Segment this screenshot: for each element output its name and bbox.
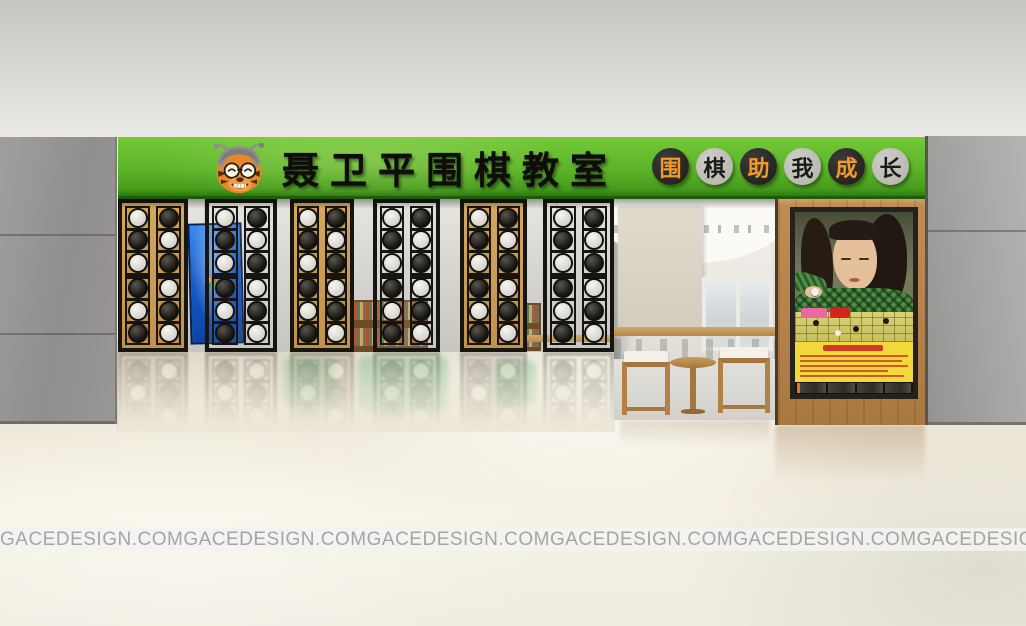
panel-column [550,206,576,345]
go-screen-panel [290,199,354,352]
panel-cell [469,208,489,231]
go-stone-black [411,301,431,321]
go-stone-black [498,253,518,273]
go-stone-black [128,278,148,298]
go-stone-white [159,278,179,298]
go-stone-white [553,301,573,321]
go-stone-white [247,278,267,298]
panel-cell [158,301,179,324]
go-stone-white [498,278,518,298]
go-stone-white [128,253,148,273]
go-stone-black [584,253,604,273]
go-stone-black [159,208,179,228]
panel-cell [412,253,432,279]
panel-column [582,206,608,345]
panel-cell [214,279,236,302]
panel-cell [552,231,574,254]
panel-cell [499,208,519,231]
interior-railing [614,327,775,336]
panel-cell [327,208,345,231]
panel-cell [499,301,519,324]
slogan-circle: 助 [740,148,777,185]
panel-cell [246,279,268,302]
panel-cell [469,231,489,254]
watermark-text: GACEDESIGN.COM [550,529,733,551]
wall-base [0,421,115,424]
round-side-table [670,357,716,417]
go-stone-white [553,253,573,273]
panel-cell [127,324,148,344]
go-stone-black [298,230,318,250]
chair-frame [622,362,670,415]
storefront-render: 聂卫平围棋教室 围棋助我成长 GACEDESIGN.COMGACEDESIGN.… [0,0,1026,626]
go-stone-white [247,323,267,343]
go-stone-white [215,208,235,228]
poster-info-panel [795,342,913,382]
mall-ceiling [0,0,1026,136]
chair-frame [718,358,770,413]
panel-cell [299,324,317,344]
wall-seam [0,333,115,335]
watermark-text: GACEDESIGN.COM [917,529,1026,551]
panel-cell [299,231,317,254]
go-stone-black [498,208,518,228]
go-stone-white [326,323,346,343]
girl-eye [859,258,869,260]
panel-cell [127,208,148,231]
panel-cell [214,231,236,254]
panel-cell [499,253,519,279]
go-stone-white [326,230,346,250]
panel-column [156,206,181,345]
go-stone-white [159,323,179,343]
poster-text-line [800,370,888,372]
panel-cell [158,253,179,279]
poster-headline-bar [823,345,883,351]
panel-cell [246,231,268,254]
panel-column [467,206,491,345]
tiger-mascot-icon [210,140,268,194]
panel-cell [499,279,519,302]
panel-column [325,206,347,345]
slogan-circle: 棋 [696,148,733,185]
panel-cell [158,324,179,344]
go-stone-black [159,301,179,321]
panel-cell [552,253,574,279]
black-go-stone [813,320,819,326]
wall-base [928,422,1026,425]
panel-cell [158,208,179,231]
storefront-sign: 聂卫平围棋教室 围棋助我成长 [118,137,925,199]
go-stone-white [382,301,402,321]
go-class-poster [790,207,918,399]
panel-cell [469,324,489,344]
go-stone-black [247,208,267,228]
go-stone-black [298,323,318,343]
white-go-stone [811,288,819,296]
go-screen-panel [373,199,440,352]
roller-blind [618,207,702,331]
go-stone-black [326,301,346,321]
panel-cell [214,253,236,279]
black-go-stone [853,326,859,332]
go-stone-black [553,323,573,343]
pillar-reflection [775,425,925,481]
go-stone-black [215,323,235,343]
go-stone-black [128,323,148,343]
panel-column [497,206,521,345]
go-stone-black [498,301,518,321]
go-stone-black [382,230,402,250]
panel-cell [499,324,519,344]
go-stone-black [215,278,235,298]
go-stone-white [498,230,518,250]
go-stone-white [469,253,489,273]
sign-slogan-circles: 围棋助我成长 [652,148,909,185]
panel-cell [158,231,179,254]
panel-cell [584,279,606,302]
girl-eye [841,258,851,260]
go-stone-white [411,278,431,298]
mall-wall-left [0,137,117,424]
panel-cell [382,301,402,324]
go-stone-black [584,301,604,321]
go-stone-white [247,230,267,250]
go-stone-white [411,230,431,250]
panel-cell [158,279,179,302]
panel-cell [299,301,317,324]
slogan-circle: 成 [828,148,865,185]
panel-cell [412,231,432,254]
entrance-reflection [620,420,770,446]
go-stone-white [584,230,604,250]
panel-cell [127,279,148,302]
poster-photo-strip [795,382,913,394]
go-stone-black [247,253,267,273]
go-stone-black [584,208,604,228]
panel-column [410,206,434,345]
panel-cell [584,208,606,231]
panel-cell [584,253,606,279]
panel-cell [412,324,432,344]
panel-cell [469,301,489,324]
girl-hair-bangs [829,220,879,240]
panel-column [380,206,404,345]
panel-cell [127,253,148,279]
panel-cell [552,301,574,324]
panel-cell [214,324,236,344]
go-stone-white [215,253,235,273]
go-stone-white [469,208,489,228]
go-stone-white [298,301,318,321]
go-stone-white [382,253,402,273]
panel-cell [382,253,402,279]
reflection-fade [118,352,615,432]
go-stone-white [159,230,179,250]
panel-cell [552,324,574,344]
panel-cell [299,253,317,279]
go-stone-black [382,278,402,298]
go-stone-black [411,253,431,273]
watermark-text: GACEDESIGN.COM [367,529,550,551]
go-stone-black [298,278,318,298]
go-stone-white [382,208,402,228]
panel-cell [246,301,268,324]
go-stone-black [247,301,267,321]
go-stone-black [382,323,402,343]
white-go-stone [835,330,841,336]
go-stone-white [584,278,604,298]
go-screen-panel [118,199,188,352]
panel-cell [412,279,432,302]
go-screen-panel [543,199,614,352]
poster-text-line [800,375,904,377]
panel-cell [246,208,268,231]
poster-badge [801,308,827,318]
mall-wall-right [925,135,1026,425]
panel-cell [327,324,345,344]
slogan-circle: 我 [784,148,821,185]
panel-cell [552,208,574,231]
go-stone-black [326,208,346,228]
panel-cell [584,231,606,254]
panel-column [212,206,238,345]
poster-badges [801,308,850,318]
sign-title: 聂卫平围棋教室 [282,140,618,194]
panel-cell [246,324,268,344]
panel-cell [327,301,345,324]
wood-pillar [775,197,925,425]
go-stone-white [553,208,573,228]
panel-cell [327,231,345,254]
watermark-band: GACEDESIGN.COMGACEDESIGN.COMGACEDESIGN.C… [0,528,1026,551]
go-stone-white [584,323,604,343]
go-screen-panel [205,199,277,352]
go-stone-black [553,278,573,298]
wall-seam [928,230,1026,232]
go-stone-white [498,323,518,343]
watermark-text: GACEDESIGN.COM [733,529,916,551]
panel-cell [584,301,606,324]
panel-cell [382,208,402,231]
go-stone-white [298,208,318,228]
panel-cell [327,279,345,302]
table-leg [690,366,696,410]
poster-badge [830,308,850,318]
panel-cell [214,208,236,231]
panel-cell [299,279,317,302]
panel-cell [412,301,432,324]
black-go-stone [883,318,889,324]
go-stone-white [298,253,318,273]
panel-cell [469,279,489,302]
panel-cell [382,279,402,302]
go-stone-white [215,301,235,321]
slogan-circle: 长 [872,148,909,185]
watermark-text: GACEDESIGN.COM [0,529,183,551]
panel-column [125,206,150,345]
wall-seam [0,234,115,236]
panel-cell [382,231,402,254]
go-stone-black [469,278,489,298]
panel-cell [127,231,148,254]
panel-cell [299,208,317,231]
go-stone-white [326,278,346,298]
slogan-circle: 围 [652,148,689,185]
go-stone-black [128,230,148,250]
poster-text-line [800,365,908,367]
panel-cell [214,301,236,324]
panel-cell [552,279,574,302]
go-stone-white [128,208,148,228]
panel-cell [499,231,519,254]
panel-column [244,206,270,345]
panel-cell [584,324,606,344]
poster-text-line [800,355,908,357]
go-stone-black [215,230,235,250]
go-stone-black [469,323,489,343]
panel-cell [382,324,402,344]
wooden-chair [718,347,770,413]
panel-column [297,206,319,345]
panel-cell [327,253,345,279]
go-screen-panel [460,199,527,352]
go-stone-black [411,208,431,228]
go-stone-white [469,301,489,321]
girl-mouth [849,278,860,282]
wooden-chair [622,351,670,415]
go-stone-white [411,323,431,343]
panel-cell [246,253,268,279]
go-stone-black [553,230,573,250]
go-stone-white [128,301,148,321]
go-stone-black [159,253,179,273]
watermark-text: GACEDESIGN.COM [183,529,366,551]
panel-cell [469,253,489,279]
panel-cell [127,301,148,324]
go-stone-black [326,253,346,273]
entrance-opening [614,199,775,420]
go-stone-black [469,230,489,250]
table-base [681,409,705,414]
poster-text-line [800,360,902,362]
panel-cell [412,208,432,231]
